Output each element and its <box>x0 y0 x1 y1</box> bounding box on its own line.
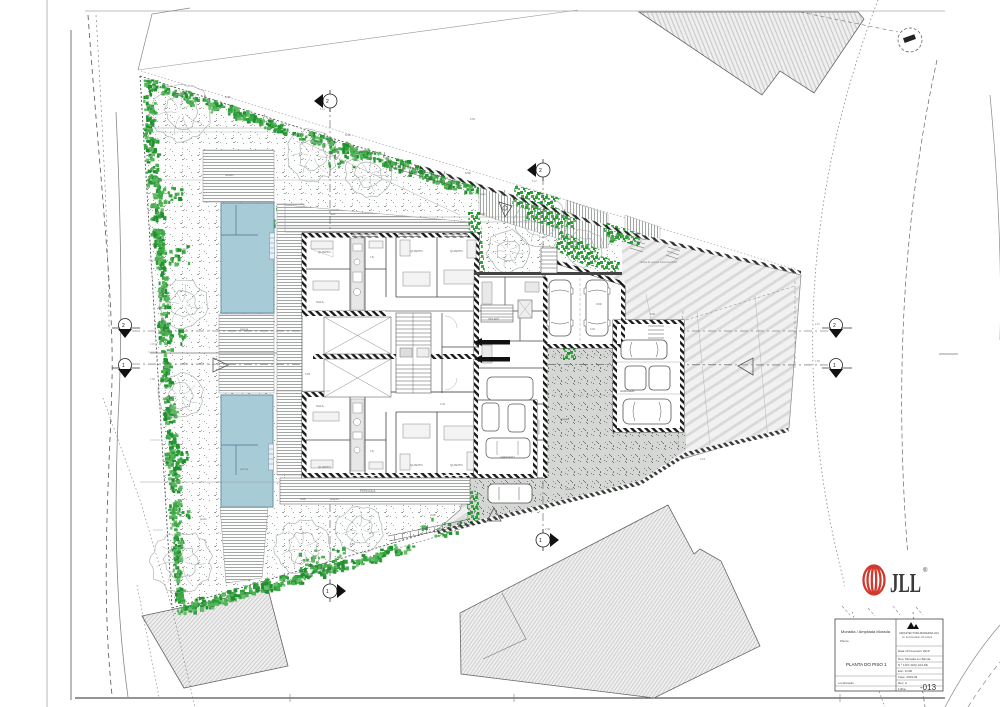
svg-text:ARQUITECTURA MODERNA LDA: ARQUITECTURA MODERNA LDA <box>899 631 939 635</box>
svg-text:Data 10 Fevereiro 2019: Data 10 Fevereiro 2019 <box>898 649 930 653</box>
svg-text:ISOLADO: ISOLADO <box>488 318 499 321</box>
svg-text:2.01: 2.01 <box>150 343 155 346</box>
svg-text:2.01: 2.01 <box>815 323 820 326</box>
svg-text:Esc: 1/100: Esc: 1/100 <box>898 669 913 673</box>
svg-text:Rev: A: Rev: A <box>898 681 907 685</box>
svg-text:rampa de acesso automovel 10%: rampa de acesso automovel 10% <box>640 261 678 264</box>
svg-text:1: 1 <box>539 538 542 544</box>
svg-text:3.00: 3.00 <box>590 327 596 331</box>
svg-text:piscina: piscina <box>240 327 249 331</box>
svg-text:4.87: 4.87 <box>480 212 486 216</box>
svg-text:PERGOLA: PERGOLA <box>360 489 376 493</box>
svg-text:2: 2 <box>539 168 542 174</box>
svg-text:pergola: pergola <box>330 497 339 501</box>
svg-text:acesso: acesso <box>560 417 569 421</box>
svg-text:SALA: SALA <box>316 404 324 408</box>
svg-text:-013: -013 <box>920 683 937 692</box>
svg-text:3.00: 3.00 <box>596 302 602 306</box>
svg-text:QUARTO: QUARTO <box>450 463 463 467</box>
svg-text:6.50: 6.50 <box>470 117 476 121</box>
svg-text:2: 2 <box>833 323 836 329</box>
svg-text:Planta: Planta <box>840 639 849 643</box>
svg-text:GARAGEM: GARAGEM <box>620 389 635 393</box>
svg-text:deck: deck <box>330 212 336 216</box>
svg-text:JLL: JLL <box>890 568 921 598</box>
svg-text:1.98: 1.98 <box>150 378 155 381</box>
svg-text:4.50: 4.50 <box>350 542 356 546</box>
svg-text:1.98: 1.98 <box>815 360 820 363</box>
svg-text:QUARTO: QUARTO <box>410 463 423 467</box>
svg-text:5.50: 5.50 <box>650 312 656 316</box>
svg-text:QUARTO: QUARTO <box>318 465 331 469</box>
svg-text:I.S.: I.S. <box>370 255 375 259</box>
svg-text:piscina: piscina <box>240 467 249 471</box>
svg-text:Av. da Liberdade 110 Lisboa: Av. da Liberdade 110 Lisboa <box>902 636 933 639</box>
svg-text:patio: patio <box>480 192 486 196</box>
svg-text:6.50: 6.50 <box>345 133 351 137</box>
svg-text:4.20: 4.20 <box>430 513 436 517</box>
svg-text:2: 2 <box>326 99 329 105</box>
svg-text:2.30: 2.30 <box>545 527 551 531</box>
svg-text:Des: Moradia em Banda: Des: Moradia em Banda <box>898 657 931 661</box>
svg-text:1: 1 <box>122 363 125 369</box>
svg-text:jardim: jardim <box>179 247 187 251</box>
svg-text:Fase: 2019-09: Fase: 2019-09 <box>898 675 918 679</box>
svg-text:relvado: relvado <box>225 173 234 177</box>
svg-text:2.40: 2.40 <box>440 402 446 406</box>
svg-text:I.S.: I.S. <box>370 449 375 453</box>
svg-text:6.50: 6.50 <box>225 95 231 99</box>
svg-text:GARAGEM 2: GARAGEM 2 <box>500 456 515 459</box>
svg-text:jardim: jardim <box>199 517 207 521</box>
svg-text:1: 1 <box>326 589 329 595</box>
svg-text:SALA: SALA <box>316 300 324 304</box>
svg-text:N.º 1107-ARQ-013-PE: N.º 1107-ARQ-013-PE <box>898 663 928 667</box>
svg-text:QUARTO: QUARTO <box>318 250 331 254</box>
svg-text:®: ® <box>923 567 928 574</box>
svg-text:QUARTO: QUARTO <box>410 249 423 253</box>
svg-text:Localização: Localização <box>838 681 854 685</box>
svg-text:QUARTO: QUARTO <box>450 249 463 253</box>
svg-text:PLANTA DO PISO 1: PLANTA DO PISO 1 <box>846 662 887 667</box>
svg-text:acesso: acesso <box>565 488 574 491</box>
svg-text:1: 1 <box>833 363 836 369</box>
svg-text:Moradia / Ampliada Morada: Moradia / Ampliada Morada <box>841 629 891 634</box>
svg-text:6.12: 6.12 <box>320 108 325 111</box>
svg-text:5.85: 5.85 <box>305 372 311 376</box>
svg-text:2.15: 2.15 <box>700 457 706 461</box>
svg-text:6.12: 6.12 <box>532 180 537 183</box>
svg-text:2: 2 <box>122 323 125 329</box>
svg-text:6.50: 6.50 <box>465 171 471 175</box>
svg-text:Folha: Folha <box>898 687 906 691</box>
svg-text:5.00: 5.00 <box>300 497 306 501</box>
